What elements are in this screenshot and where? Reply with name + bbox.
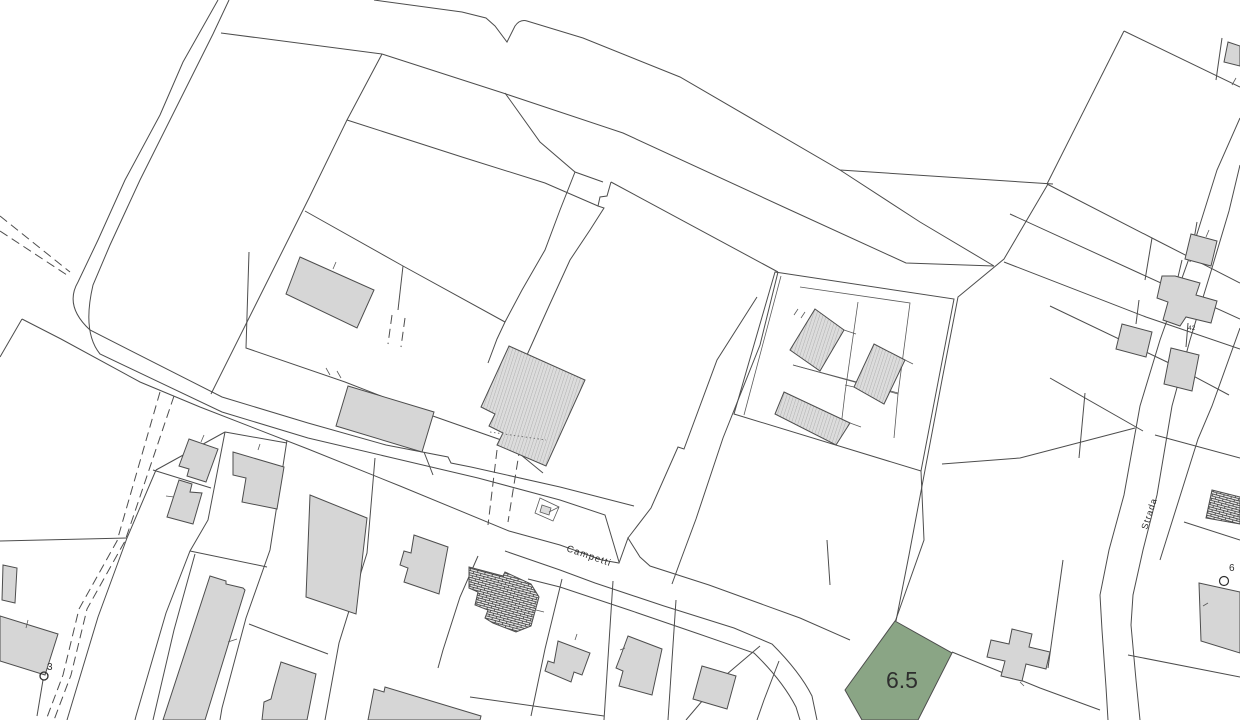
svg-text:3: 3 <box>47 662 53 673</box>
svg-text:6: 6 <box>1229 563 1235 574</box>
svg-text:42: 42 <box>1188 325 1196 332</box>
svg-text:6.5: 6.5 <box>886 667 918 693</box>
